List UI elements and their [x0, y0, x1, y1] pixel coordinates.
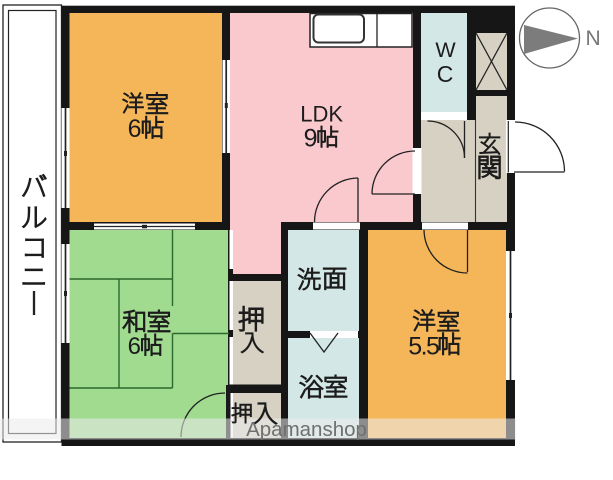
svg-text:Apamanshop: Apamanshop: [246, 418, 367, 441]
svg-text:5.5: 5.5: [408, 333, 439, 361]
svg-text:C: C: [437, 61, 454, 87]
svg-text:9: 9: [304, 125, 318, 153]
svg-text:6: 6: [128, 333, 141, 360]
svg-text:W: W: [435, 38, 456, 62]
svg-text:LDK: LDK: [300, 102, 343, 127]
svg-text:N: N: [586, 27, 601, 50]
svg-text:6: 6: [128, 115, 142, 143]
